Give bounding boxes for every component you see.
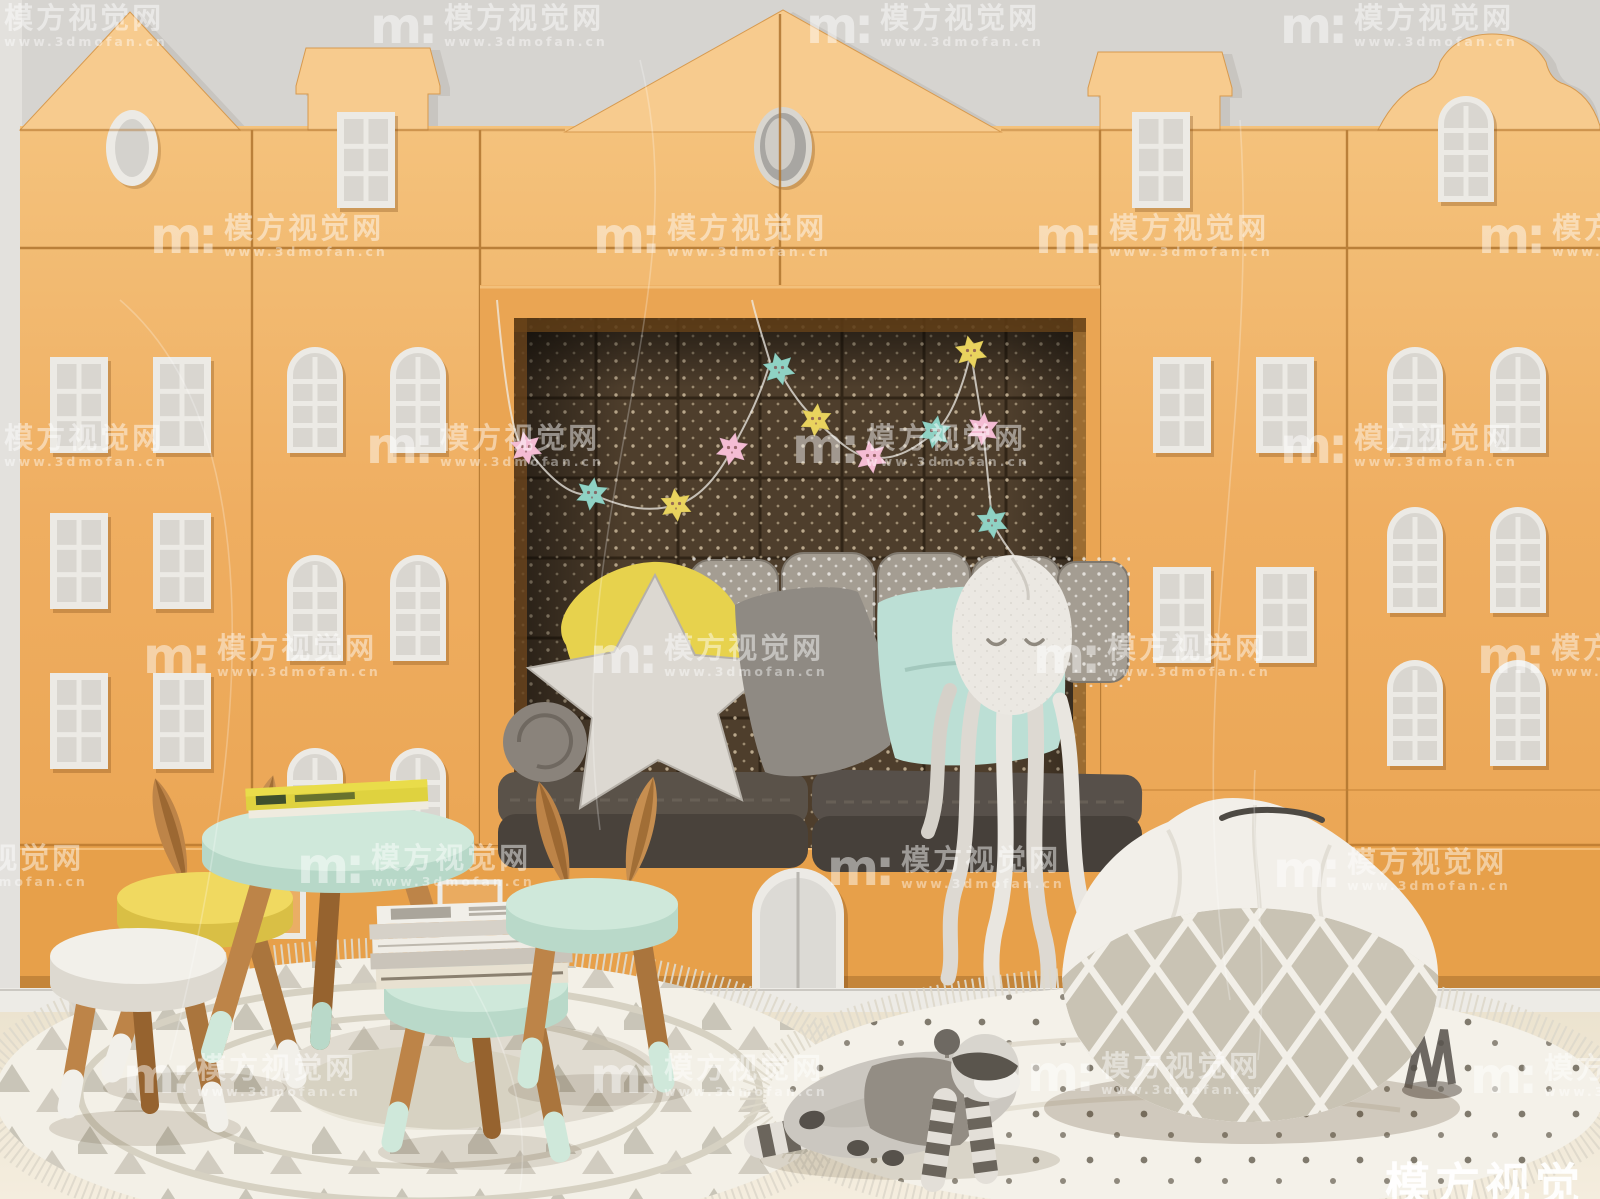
arched-window (1387, 347, 1446, 457)
kids-room-render: m:模方视觉网www.3dmofan.cnm:模方视觉网www.3dmofan.… (0, 0, 1600, 1199)
arched-window (1387, 507, 1446, 617)
plush-ear-pompom (934, 1029, 960, 1055)
rect-window (153, 513, 214, 613)
arched-window (1490, 660, 1549, 770)
rect-window (1256, 357, 1317, 457)
striped-leg (976, 1096, 986, 1172)
arched-window (1490, 507, 1549, 617)
rect-window (1153, 357, 1214, 457)
arched-window (1490, 347, 1549, 457)
rect-window (153, 673, 214, 773)
arched-window (1438, 96, 1497, 206)
scene-illustration (0, 0, 1600, 1199)
chair-seat (506, 878, 678, 930)
arched-window (390, 347, 449, 457)
rect-window (50, 673, 111, 773)
rect-window (1256, 567, 1317, 667)
corner-watermark: 模方视觉网 (1385, 1148, 1600, 1199)
table-top (202, 805, 474, 871)
rect-window (1132, 112, 1193, 212)
nook-lintel (514, 318, 1086, 332)
arched-window (287, 347, 346, 457)
rect-window (1153, 567, 1214, 667)
side-wall-sliver (0, 0, 22, 1012)
rect-window (337, 112, 398, 212)
rect-window (50, 357, 111, 457)
rect-window (153, 357, 214, 457)
arched-window (1387, 660, 1446, 770)
arched-window (390, 555, 449, 665)
stool-seat (50, 928, 226, 984)
rect-window (50, 513, 111, 613)
arched-window (287, 555, 346, 665)
